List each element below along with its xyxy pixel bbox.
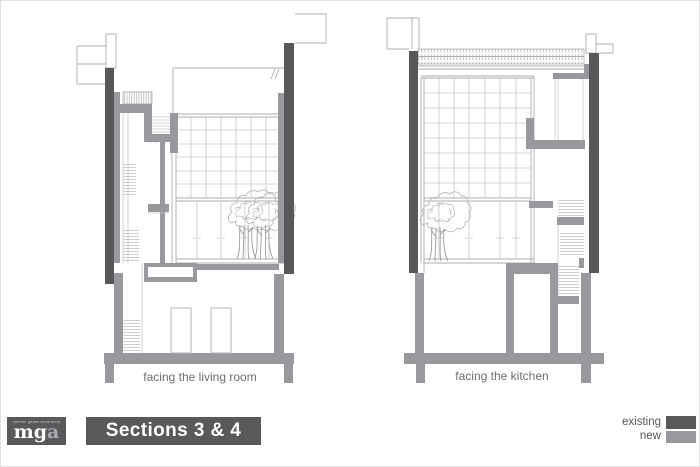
glazing-grid xyxy=(170,114,284,263)
legend-label-new: new xyxy=(640,430,661,443)
roof-hatch xyxy=(418,49,590,74)
tree-sketch xyxy=(420,192,471,261)
legend: existing new xyxy=(622,416,696,443)
railing-hatch xyxy=(123,92,152,104)
context-outlines xyxy=(387,18,613,53)
break-mark xyxy=(271,69,279,79)
sections-drawing: facing the living room xyxy=(1,1,700,401)
section-kitchen: facing the kitchen xyxy=(387,18,613,383)
mga-logo: meirav galan architects mga xyxy=(7,417,66,445)
legend-row-existing: existing xyxy=(622,416,696,429)
glazing-grid xyxy=(421,76,534,273)
legend-swatch-new xyxy=(666,431,696,443)
legend-swatch-existing xyxy=(666,416,696,429)
sheet-page: facing the living room xyxy=(0,0,700,467)
basement-doors xyxy=(171,308,231,353)
caption-living-room: facing the living room xyxy=(143,370,256,384)
caption-kitchen: facing the kitchen xyxy=(455,369,548,383)
new-construction xyxy=(404,73,604,383)
legend-row-new: new xyxy=(622,430,696,443)
sheet-title-text: Sections 3 & 4 xyxy=(106,420,241,441)
sheet-title: Sections 3 & 4 xyxy=(86,417,261,445)
legend-label-existing: existing xyxy=(622,416,661,429)
logo-word: mga xyxy=(7,423,66,442)
section-living-room: facing the living room xyxy=(77,14,326,384)
